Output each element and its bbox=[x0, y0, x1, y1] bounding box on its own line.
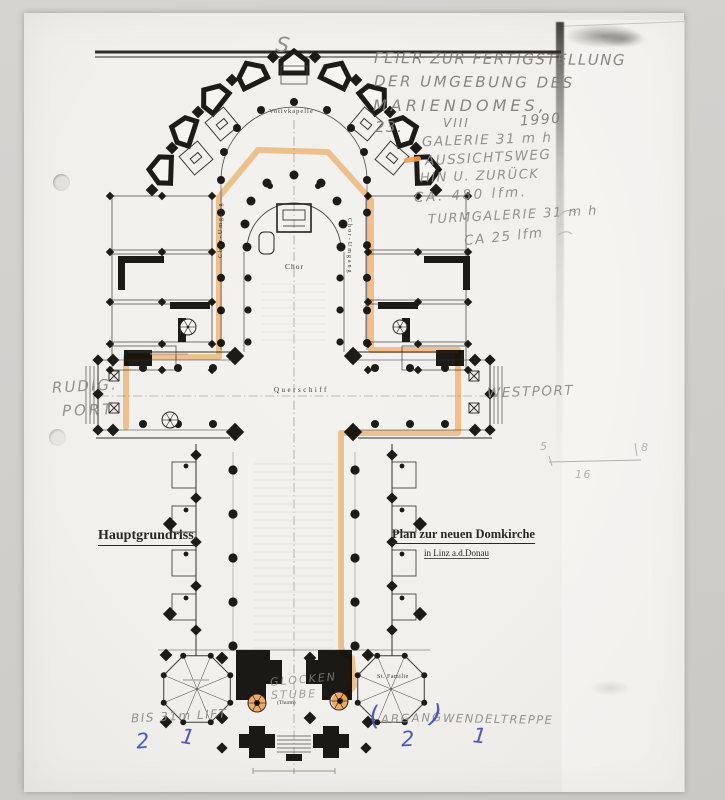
note-date-day: 23. bbox=[375, 118, 403, 136]
note-date-year: 1990 bbox=[519, 111, 562, 130]
note-wendeltreppe: WENDELTREPPE bbox=[443, 711, 554, 727]
label-chor: Chor bbox=[285, 262, 304, 271]
scanned-floor-plan-page: { "annotations": { "pencil": { "title1":… bbox=[0, 0, 725, 800]
blue-number-2-left: 2 bbox=[135, 728, 152, 753]
blue-number-1-right: 1 bbox=[472, 723, 489, 748]
west-portal-right bbox=[313, 726, 349, 758]
note-westport: WESTPORT bbox=[487, 382, 575, 401]
scale-bar bbox=[253, 768, 335, 774]
sketch-number-5: 5 bbox=[540, 440, 549, 453]
note-date-month: VIII bbox=[443, 116, 470, 130]
note-rudig: RUDIG. bbox=[52, 375, 119, 396]
label-st-familie: St. Familie bbox=[377, 674, 409, 680]
caption-plan-subtitle: in Linz a.d.Donau bbox=[424, 548, 489, 559]
caption-plan-title: Plan zur neuen Domkirche bbox=[392, 527, 535, 544]
label-votivkapelle: Votivkapelle bbox=[269, 108, 314, 115]
sketch-number-16: 16 bbox=[575, 468, 592, 481]
note-title-line2: DER UMGEBUNG DES bbox=[374, 72, 575, 92]
label-chor-umgang-left: Chor-Umgang bbox=[218, 201, 224, 258]
pencil-sketch-lines bbox=[549, 210, 641, 466]
label-chor-umgang-right: Chor-Umgang bbox=[346, 218, 352, 275]
highlighter-route bbox=[126, 150, 458, 712]
note-rudig-port: PORT bbox=[62, 400, 115, 420]
blue-number-2-right: 2 bbox=[400, 727, 416, 752]
note-title-line1: FEIER ZUR FERTIGSTELLUNG bbox=[374, 49, 626, 69]
caption-hauptgrundriss: Hauptgrundriss. bbox=[98, 528, 197, 546]
west-portal-left bbox=[239, 726, 275, 758]
sketch-number-8: 8 bbox=[641, 441, 650, 454]
label-querschiff: Querschiff bbox=[274, 386, 329, 394]
note-title-line3: MARIENDOMES, bbox=[373, 96, 548, 115]
note-stube: STUBE bbox=[271, 687, 318, 702]
